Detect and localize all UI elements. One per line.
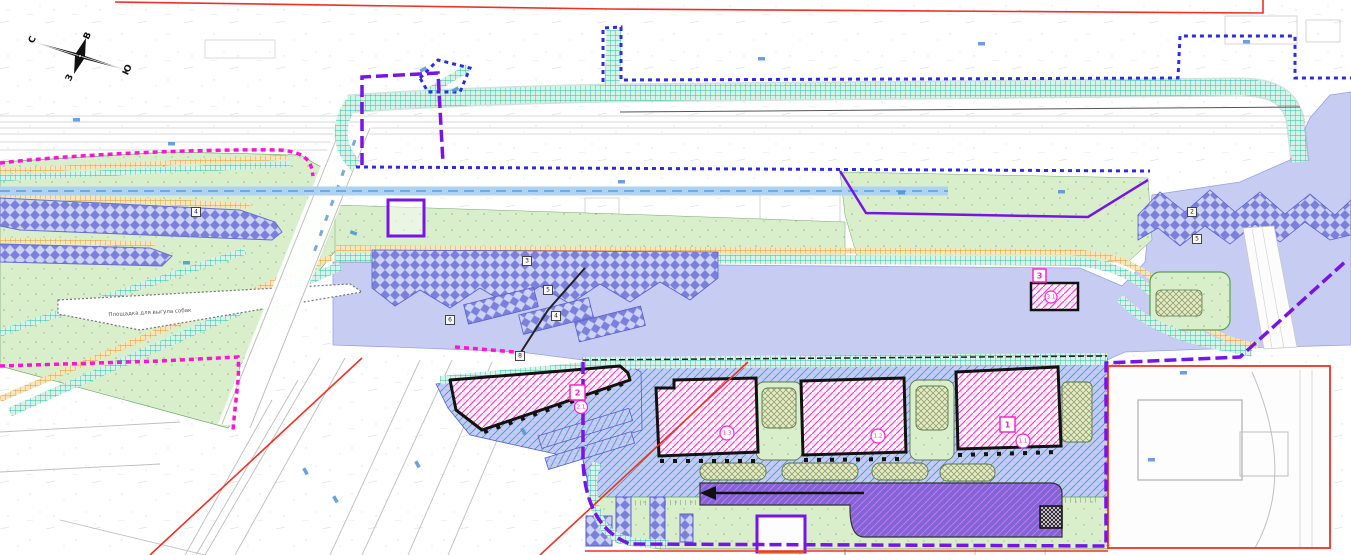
svg-text:5: 5: [1195, 236, 1199, 243]
svg-text:2: 2: [575, 389, 581, 398]
svg-text:4: 4: [194, 209, 198, 216]
unit-1-2-label: 1.2: [871, 429, 885, 443]
utility-square: [388, 200, 424, 236]
svg-text:2: 2: [1190, 209, 1194, 216]
ref-marker-2: 5: [544, 286, 553, 295]
east-red-parcel: [1108, 366, 1330, 548]
building-1-2: [801, 378, 906, 455]
ref-marker-4: 6: [446, 316, 455, 325]
unit-1-3-label: 1.3: [720, 426, 734, 440]
svg-text:3: 3: [525, 258, 529, 265]
ref-marker-6: 2: [1188, 208, 1197, 217]
svg-text:5: 5: [546, 287, 550, 294]
service-building: [757, 516, 805, 552]
building-1-3: [656, 378, 758, 456]
svg-text:6: 6: [448, 317, 452, 324]
svg-text:3.1: 3.1: [1047, 295, 1056, 301]
svg-text:4: 4: [554, 313, 558, 320]
svg-text:3: 3: [1037, 272, 1043, 281]
ref-marker-8: 4: [192, 208, 201, 217]
ref-marker-5: 8: [516, 352, 525, 361]
masterplan-drawing: Площадка для выгула собак: [0, 0, 1351, 555]
ref-marker-1: 3: [523, 257, 532, 266]
svg-text:1.1: 1.1: [1019, 439, 1028, 445]
site-plan-canvas: Площадка для выгула собак: [0, 0, 1351, 555]
east-khaki-island: [1156, 290, 1202, 316]
ref-marker-7: 5: [1193, 235, 1202, 244]
svg-text:2.1: 2.1: [577, 405, 586, 411]
building-1-1: [956, 367, 1061, 449]
hatched-structure: [1040, 506, 1062, 528]
svg-text:1.2: 1.2: [874, 434, 883, 440]
courtyard-top-path: [583, 359, 1107, 363]
svg-text:1: 1: [1005, 421, 1011, 430]
svg-text:8: 8: [518, 353, 522, 360]
ref-marker-3: 4: [552, 312, 561, 321]
svg-text:1.3: 1.3: [723, 431, 732, 437]
